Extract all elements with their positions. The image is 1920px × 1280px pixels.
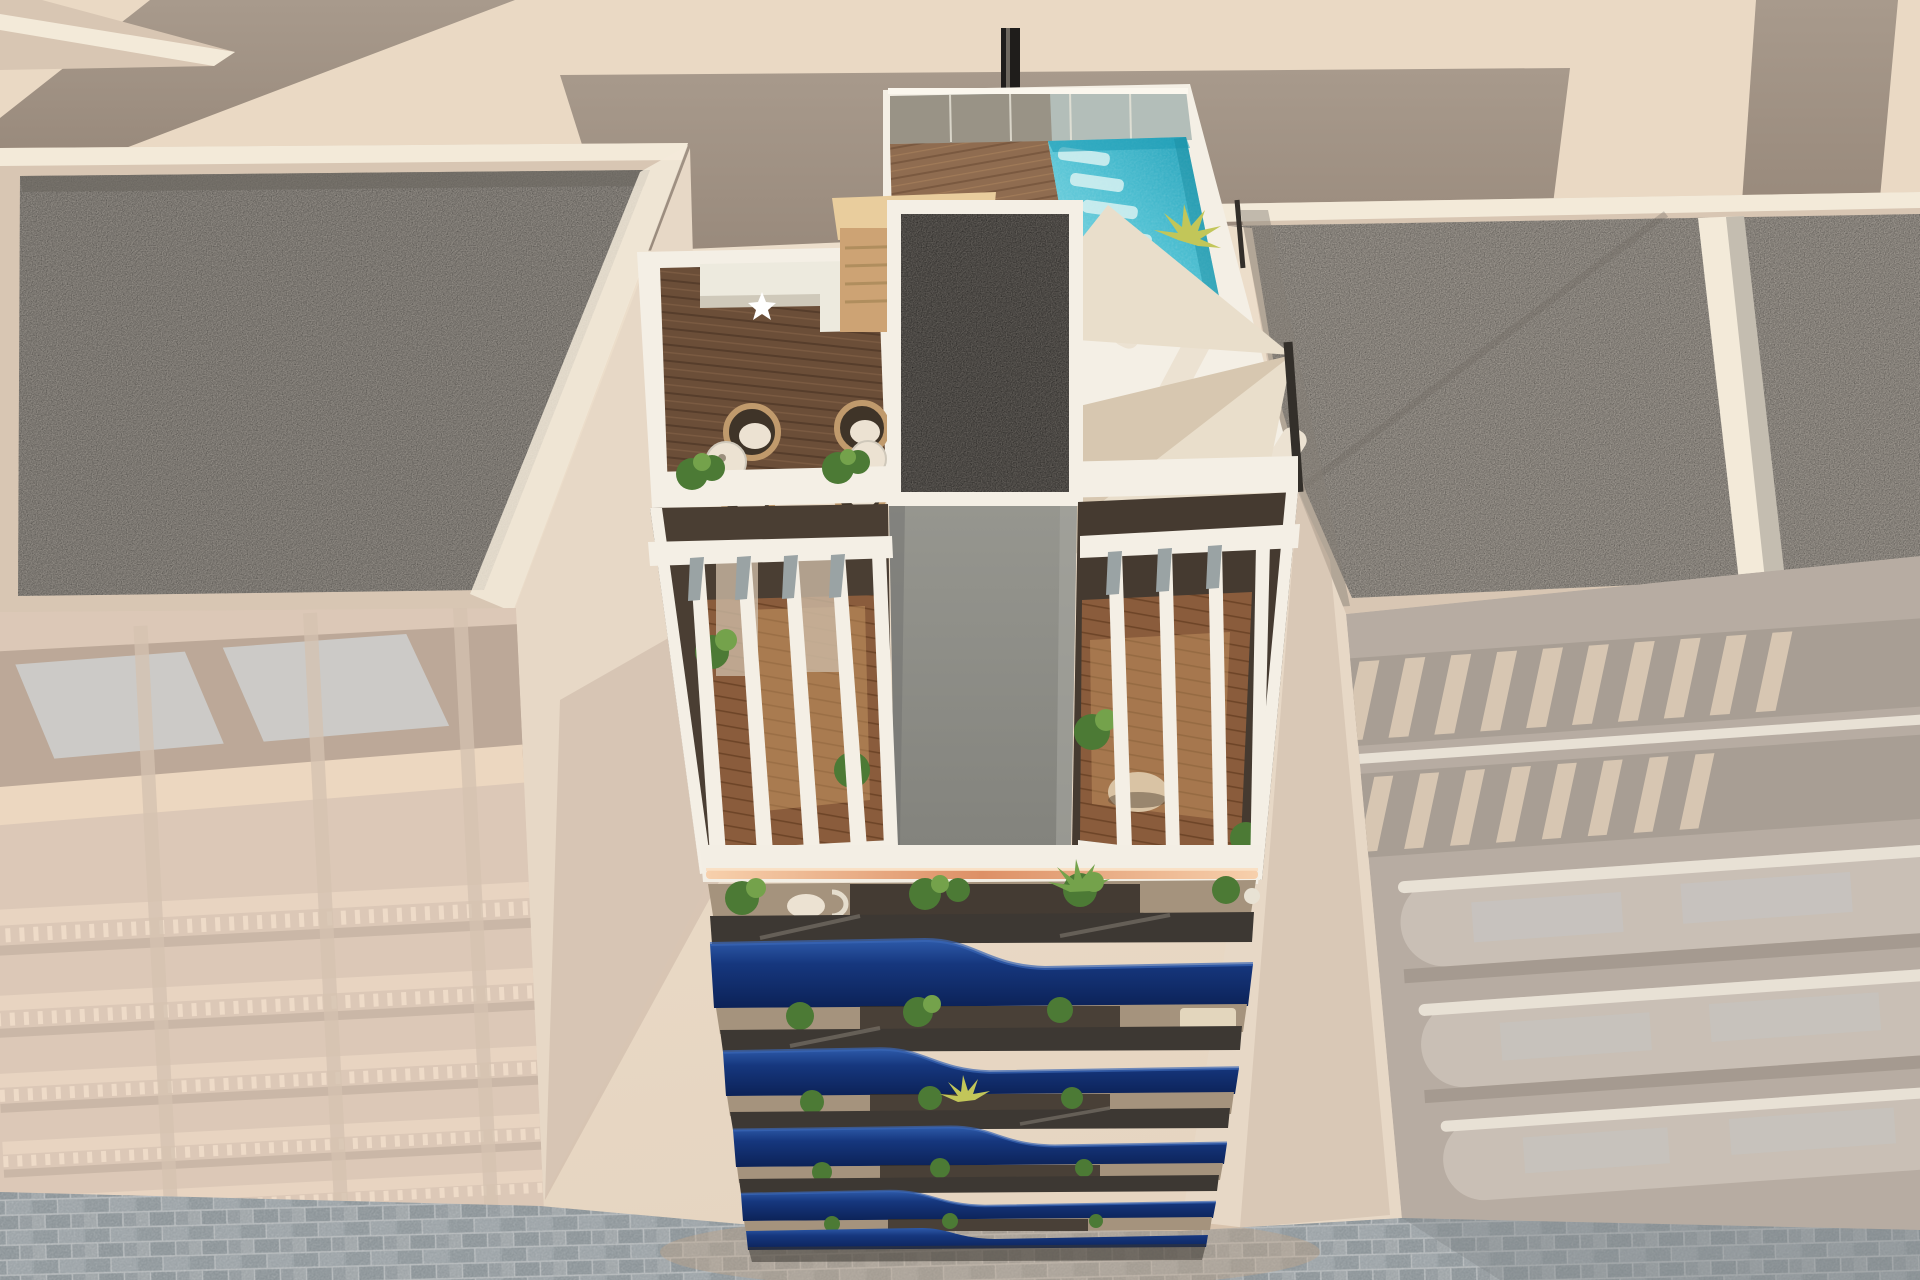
left-neighbour-facade bbox=[0, 597, 567, 1245]
balcony-2-glass bbox=[720, 1026, 1242, 1052]
white-pot bbox=[1244, 888, 1260, 904]
balcony-2-doorway bbox=[860, 1006, 1120, 1030]
core-gravel-texture bbox=[901, 214, 1069, 492]
right-facade-haze bbox=[1346, 556, 1920, 1236]
rear-wall-right bbox=[1742, 0, 1898, 202]
copper-glow-line bbox=[706, 868, 1258, 871]
wave-balcony-2 bbox=[716, 995, 1247, 1096]
glass-top-rail bbox=[888, 88, 1188, 94]
wave-balcony-4 bbox=[737, 1158, 1223, 1221]
elevator-core bbox=[887, 200, 1083, 877]
copper-led-strip bbox=[706, 870, 1258, 879]
balcony-1-glass bbox=[710, 912, 1254, 944]
right-neighbour-facade bbox=[1314, 556, 1920, 1236]
glass-balustrade-wood-tint bbox=[890, 93, 1052, 144]
render-canvas bbox=[0, 0, 1920, 1280]
balcony-table bbox=[787, 894, 825, 918]
fascia bbox=[700, 845, 1262, 884]
core-shaft bbox=[889, 506, 1077, 845]
left-facade-haze bbox=[0, 608, 544, 1210]
scene-svg bbox=[0, 0, 1920, 1280]
building-base-shadow bbox=[748, 1244, 1206, 1262]
